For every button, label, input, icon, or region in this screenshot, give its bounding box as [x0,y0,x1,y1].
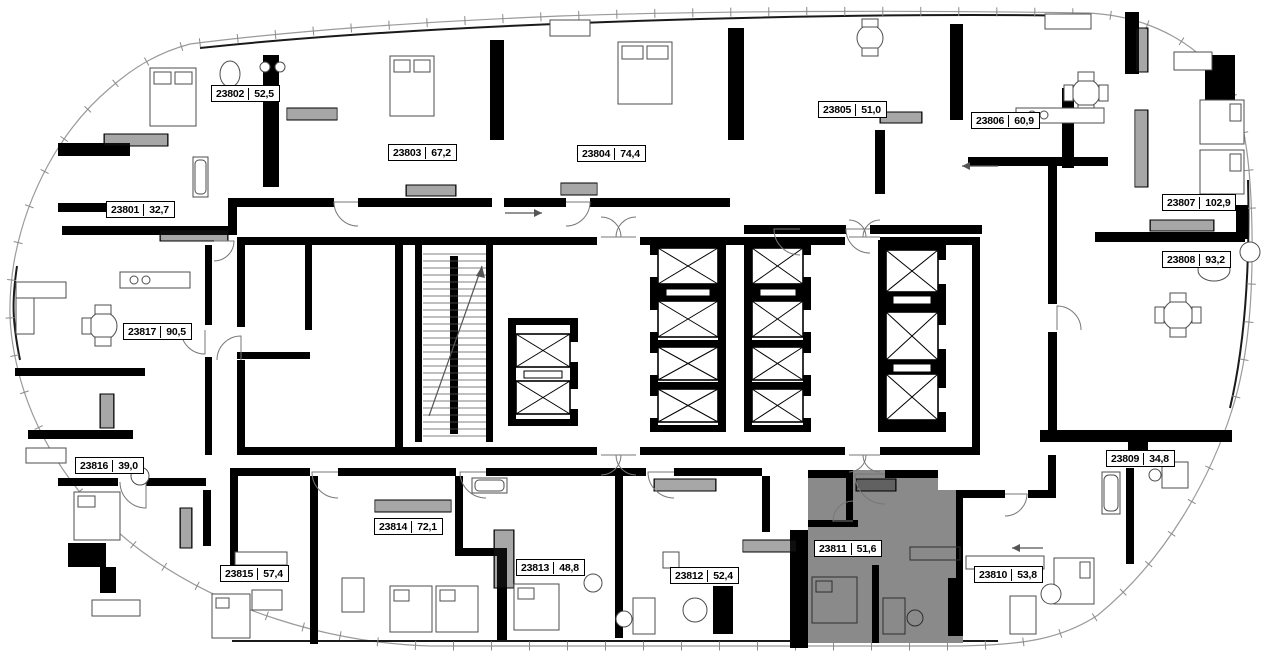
apartment-label-23809[interactable]: 2380934,8 [1106,450,1175,467]
apartment-id: 23804 [578,148,615,160]
sofa-symbol [633,598,655,634]
apartment-label-23815[interactable]: 2381557,4 [220,565,289,582]
door-swing [334,202,358,226]
table-symbol [252,590,282,610]
apartment-area: 102,9 [1200,197,1235,209]
apartment-id: 23808 [1163,254,1200,266]
apartment-label-23811[interactable]: 2381151,6 [814,540,882,557]
apartment-area: 51,0 [856,104,886,116]
apartment-area: 34,8 [1144,453,1174,465]
door-swing [566,202,590,226]
apartment-id: 23817 [124,326,161,338]
apartment-area: 32,7 [144,204,174,216]
elevator-shaft [658,301,718,337]
dining-table-symbol [82,305,117,346]
apartment-area: 57,4 [258,568,288,580]
apartment-label-23812[interactable]: 2381252,4 [670,567,739,584]
elevator-shaft [752,301,803,337]
apartment-id: 23801 [107,204,144,216]
elevator-shaft [658,347,718,380]
apartment-area: 39,0 [113,460,143,472]
bed-symbol [1200,150,1244,194]
bed-symbol [150,68,196,126]
bed-symbol [74,492,120,540]
kitchen-counter-symbol [235,552,287,565]
apartment-label-23806[interactable]: 2380660,9 [971,112,1040,129]
door-swing [616,217,636,237]
door-swing [120,482,146,508]
furniture [16,14,1260,638]
apartment-id: 23805 [819,104,856,116]
apartment-label-23817[interactable]: 2381790,5 [123,323,192,340]
apartment-label-23807[interactable]: 23807102,9 [1162,194,1236,211]
apartment-id: 23809 [1107,453,1144,465]
elevator-shaft [886,250,938,292]
walls [15,12,1248,648]
apartment-area: 93,2 [1200,254,1230,266]
apartment-id: 23813 [517,562,554,574]
armchair-symbol [616,611,632,627]
armchair-symbol [1240,242,1260,262]
apartment-label-23814[interactable]: 2381472,1 [374,518,443,535]
apartment-label-23802[interactable]: 2380252,5 [211,85,280,102]
door-swing [601,217,621,237]
table-symbol [342,578,364,612]
door-swing [214,241,234,261]
bed-symbol [390,586,432,632]
armchair-symbol [584,574,602,592]
apartment-id: 23811 [815,543,852,555]
sofa-symbol [26,448,66,463]
dining-table-symbol [1155,293,1201,337]
sofa-symbol [92,600,140,616]
apartment-area: 74,4 [615,148,645,160]
elevator-shaft [658,248,718,284]
bathtub-symbol [472,478,507,493]
elevator-bank [516,248,938,422]
apartment-id: 23814 [375,521,412,533]
elevator-shaft [516,334,570,367]
table-symbol [683,598,707,622]
table-symbol [1041,584,1061,604]
elevator-shaft [752,347,803,380]
elevator-shaft [752,389,803,422]
apartment-id: 23807 [1163,197,1200,209]
bathtub-symbol [1102,472,1120,514]
armchair-symbol [663,552,679,568]
apartment-id: 23803 [389,147,426,159]
floor-plan: 2380132,72380252,52380367,22380474,42380… [0,0,1280,652]
floor-plan-svg [0,0,1280,652]
apartment-area: 90,5 [161,326,191,338]
apartment-label-23813[interactable]: 2381348,8 [516,559,585,576]
sofa-symbol [1174,52,1212,70]
elevator-shaft [658,389,718,422]
sofa-symbol [1010,596,1036,634]
sofa-symbol [1045,14,1091,29]
kitchen-counter-symbol [120,272,190,288]
apartment-label-23804[interactable]: 2380474,4 [577,145,646,162]
bed-symbol [1200,100,1244,144]
dining-table-symbol [857,19,883,56]
apartment-label-23803[interactable]: 2380367,2 [388,144,457,161]
apartment-area: 67,2 [426,147,456,159]
apartment-id: 23812 [671,570,708,582]
apartment-area: 52,5 [249,88,279,100]
door-swing [1057,306,1081,330]
bed-symbol [514,584,559,630]
bed-symbol [618,42,672,104]
apartment-label-23805[interactable]: 2380551,0 [818,101,887,118]
bathtub-symbol [220,61,240,87]
apartment-label-23808[interactable]: 2380893,2 [1162,251,1231,268]
apartment-id: 23806 [972,115,1009,127]
apartment-label-23801[interactable]: 2380132,7 [106,201,175,218]
bed-symbol [436,586,478,632]
apartment-id: 23816 [76,460,113,472]
bed-symbol [390,56,434,116]
bathtub-symbol [193,157,208,197]
apartment-area: 53,8 [1012,569,1042,581]
apartment-id: 23815 [221,568,258,580]
apartment-id: 23810 [975,569,1012,581]
door-swing [1005,494,1027,516]
apartment-label-23810[interactable]: 2381053,8 [974,566,1043,583]
elevator-shaft [886,312,938,360]
elevator-shaft [886,374,938,420]
apartment-label-23816[interactable]: 2381639,0 [75,457,144,474]
sofa-symbol [550,20,590,36]
sofa-symbol [16,282,66,334]
apartment-area: 48,8 [554,562,584,574]
apartment-area: 60,9 [1009,115,1039,127]
door-swing [846,229,870,253]
bed-symbol [212,594,250,638]
apartment-area: 52,4 [708,570,738,582]
elevator-shaft [516,381,570,414]
apartment-area: 51,6 [852,543,882,555]
apartment-id: 23802 [212,88,249,100]
apartment-area: 72,1 [412,521,442,533]
elevator-shaft [752,248,803,284]
